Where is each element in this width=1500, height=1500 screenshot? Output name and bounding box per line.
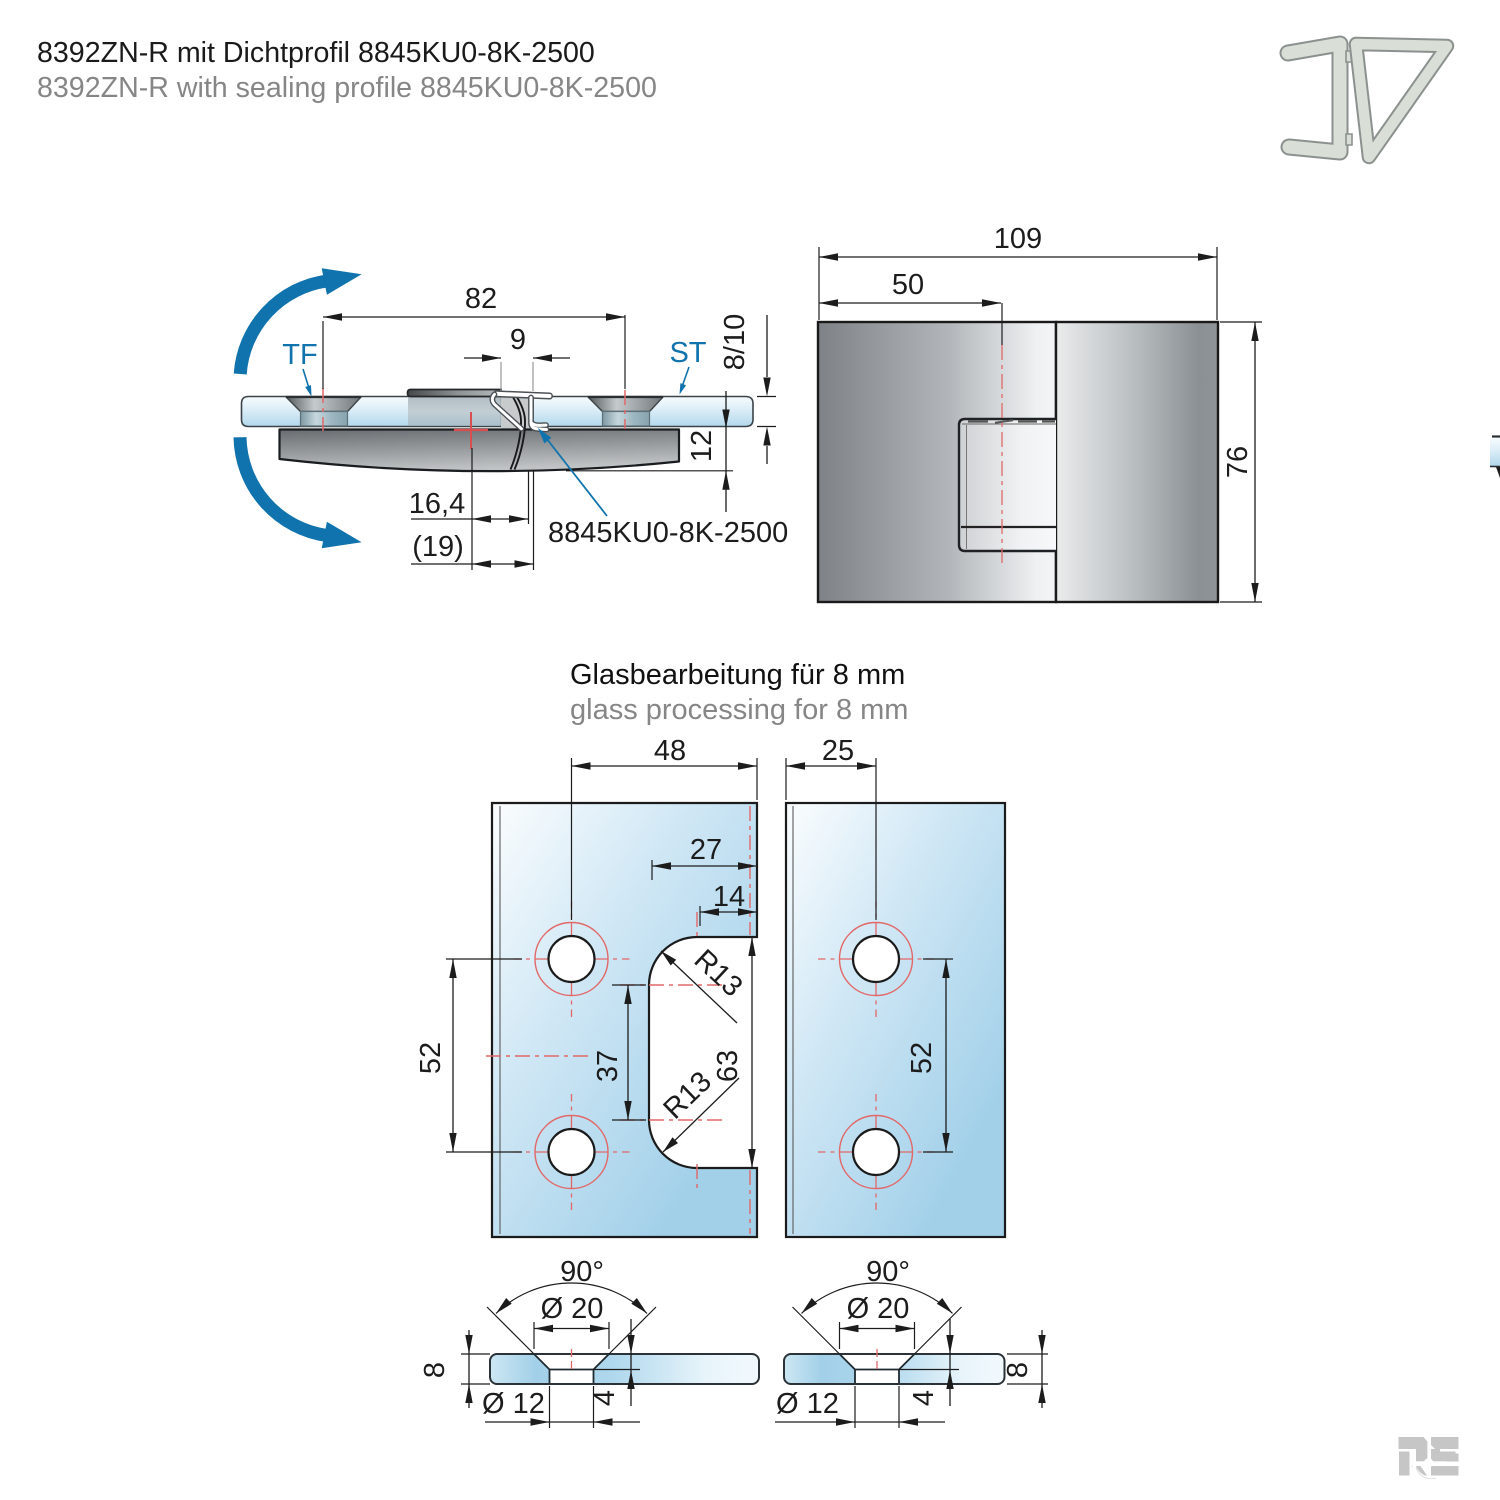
svg-text:52: 52 [415,1042,447,1074]
svg-text:14: 14 [713,881,745,913]
svg-text:Ø 12: Ø 12 [482,1388,545,1420]
svg-text:Glasbearbeitung für 8 mm: Glasbearbeitung für 8 mm [570,659,905,691]
svg-text:8845KU0-8K-2500: 8845KU0-8K-2500 [548,517,788,549]
svg-text:ST: ST [669,337,706,369]
svg-text:82: 82 [465,283,497,315]
svg-text:90°: 90° [866,1256,910,1288]
svg-text:8/10: 8/10 [719,314,751,370]
svg-text:52: 52 [906,1042,938,1074]
svg-text:12: 12 [686,430,718,462]
svg-text:Ø 20: Ø 20 [847,1293,910,1325]
svg-text:8: 8 [419,1362,451,1378]
svg-text:Ø 20: Ø 20 [541,1293,604,1325]
svg-text:63: 63 [712,1050,744,1082]
svg-text:4: 4 [908,1390,940,1406]
svg-text:(19): (19) [412,531,464,563]
svg-text:27: 27 [690,834,722,866]
svg-text:109: 109 [994,223,1042,255]
svg-text:48: 48 [654,735,686,767]
svg-text:25: 25 [822,735,854,767]
svg-text:76: 76 [1222,446,1254,478]
svg-text:9: 9 [510,324,526,356]
svg-text:8392ZN-R mit Dichtprofil 8845K: 8392ZN-R mit Dichtprofil 8845KU0-8K-2500 [37,37,595,69]
svg-text:TF: TF [282,339,317,371]
svg-text:90°: 90° [560,1256,604,1288]
svg-text:8392ZN-R with sealing profile: 8392ZN-R with sealing profile 8845KU0-8K… [37,72,657,104]
svg-text:Ø 12: Ø 12 [776,1388,839,1420]
svg-text:16,4: 16,4 [409,488,465,520]
svg-text:glass processing for 8 mm: glass processing for 8 mm [570,694,908,726]
svg-text:4: 4 [589,1390,621,1406]
svg-text:8: 8 [1002,1362,1034,1378]
svg-text:R13: R13 [657,1066,718,1126]
svg-text:R13: R13 [688,944,749,1004]
svg-text:37: 37 [592,1050,624,1082]
svg-text:50: 50 [892,269,924,301]
